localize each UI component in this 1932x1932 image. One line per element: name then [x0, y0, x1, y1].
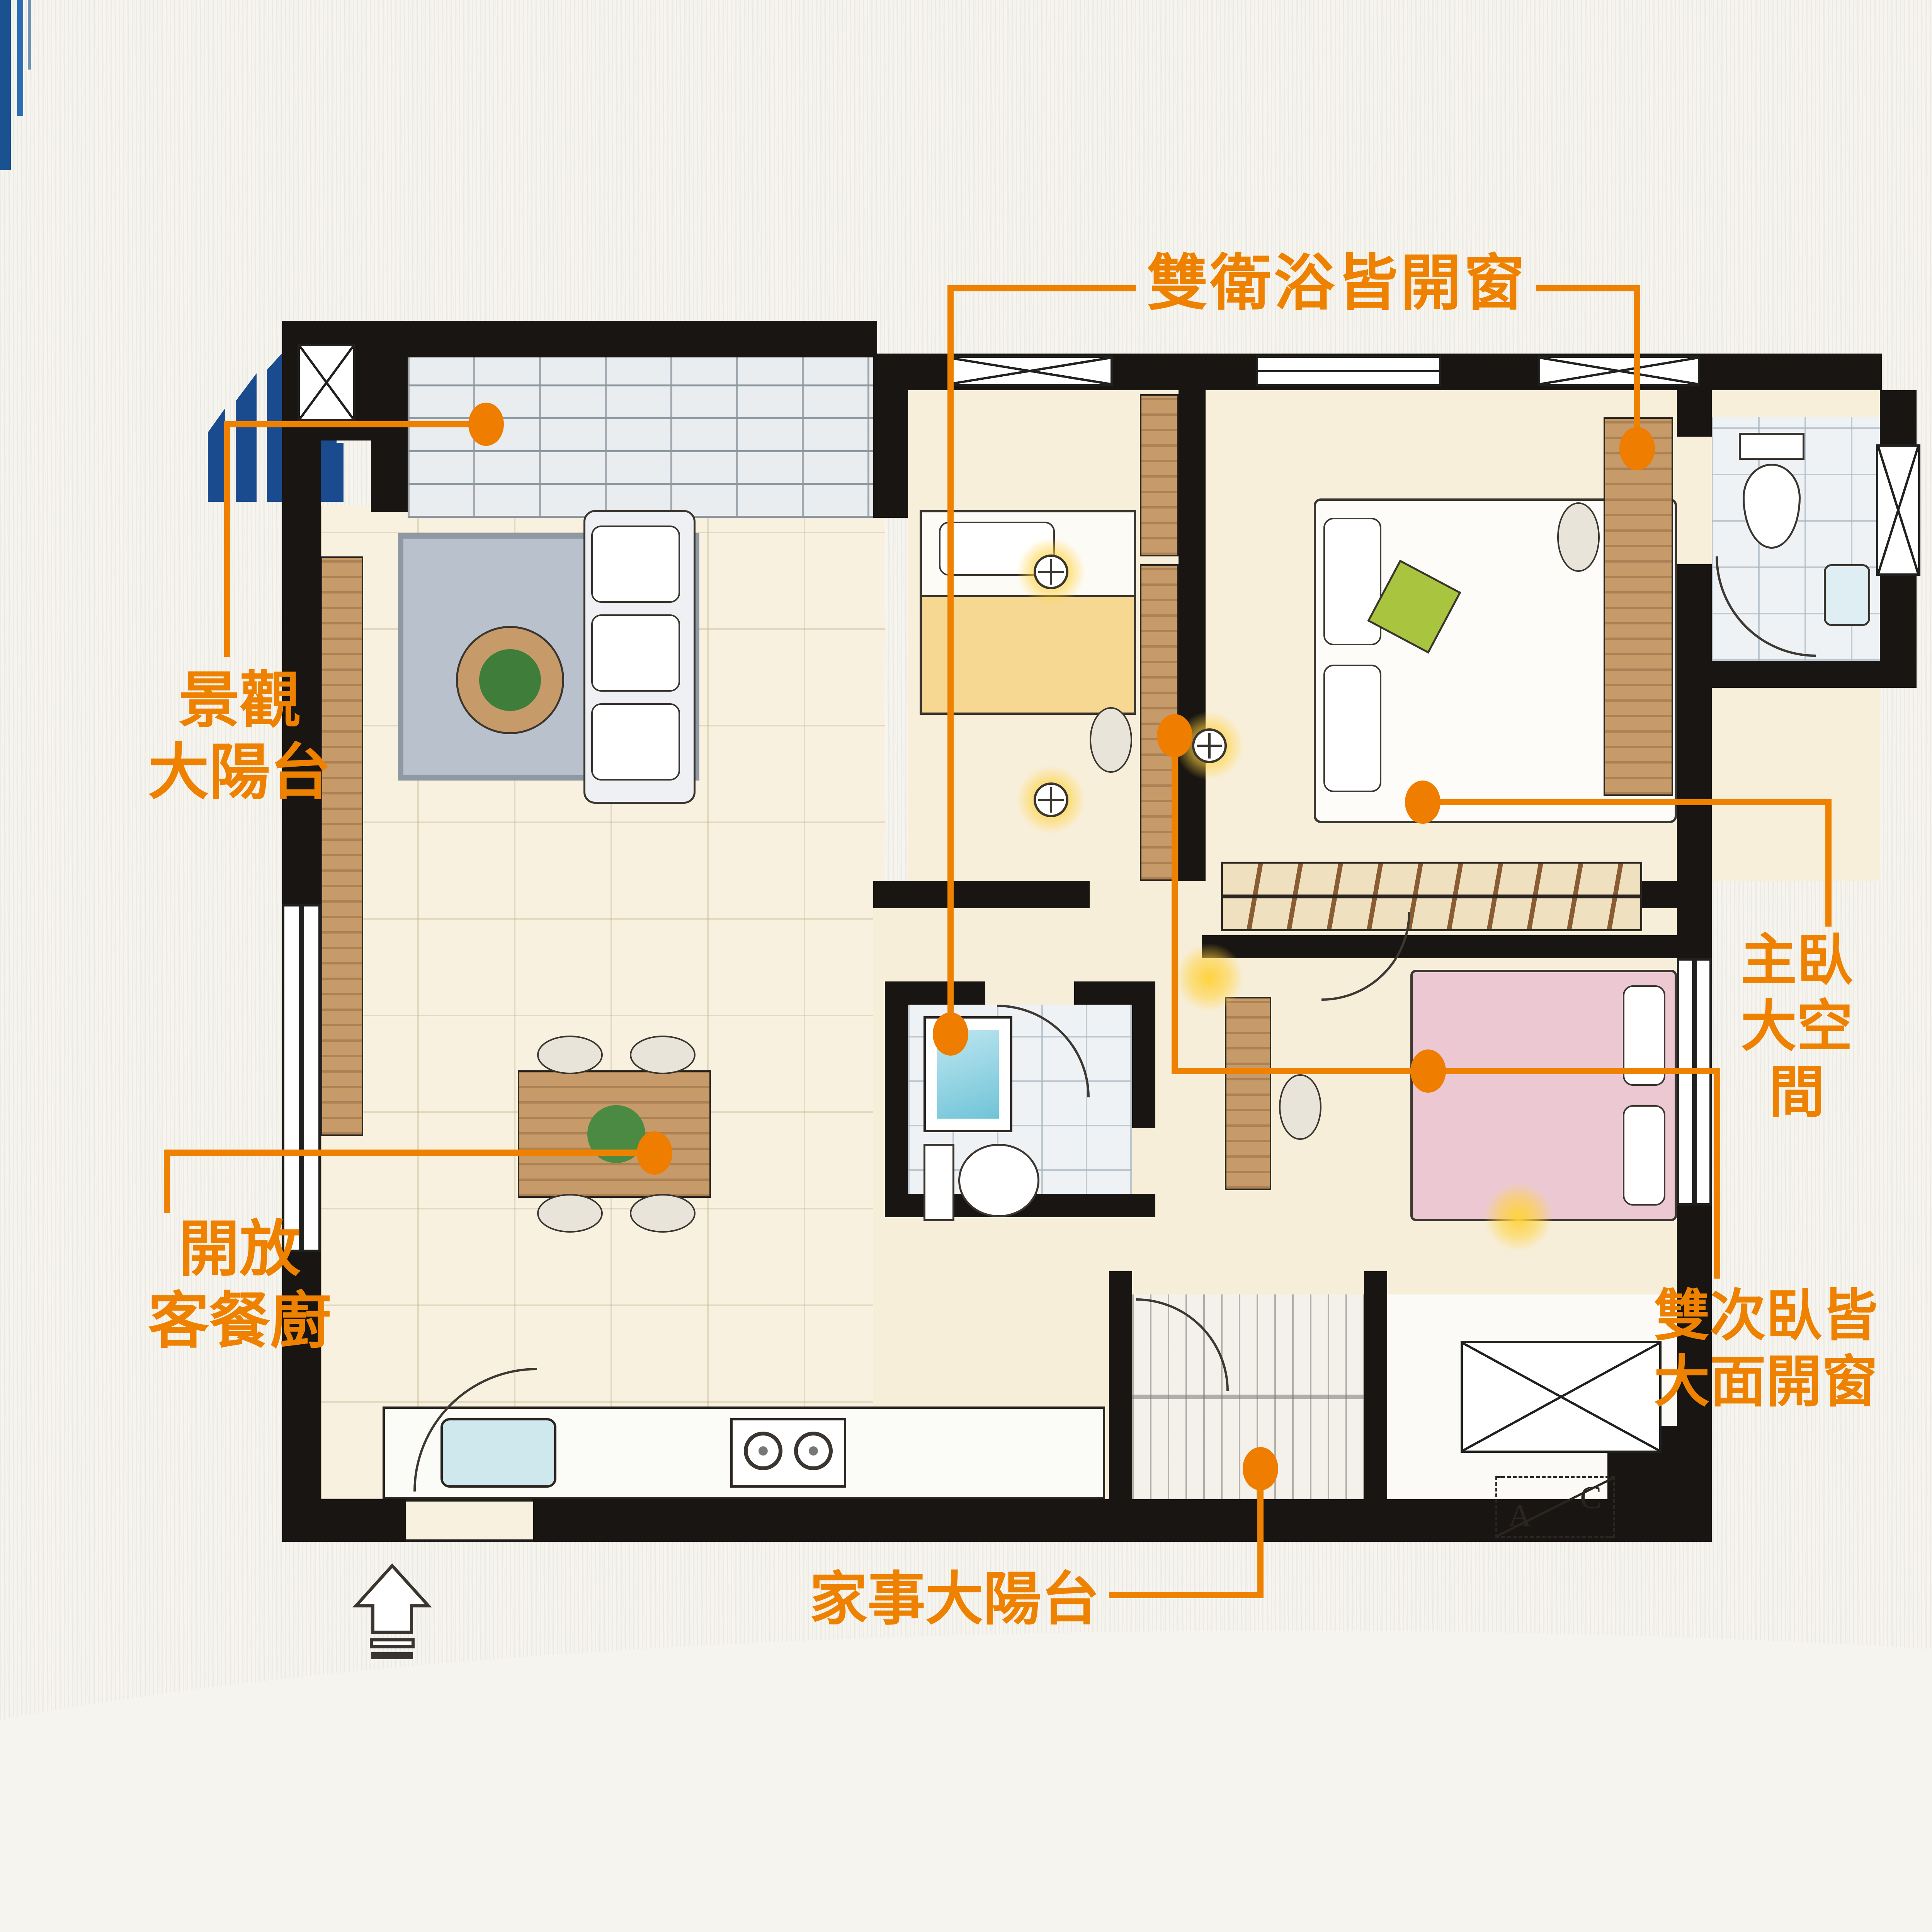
- leader-kitchen-dot: [637, 1131, 672, 1175]
- bed2-pillow-2: [1623, 1105, 1665, 1206]
- window-topleft-shaft: [298, 344, 355, 421]
- ceiling-light-symbol-2: [1034, 782, 1068, 817]
- entrance-arrow-icon: [350, 1561, 435, 1662]
- poster-page: 餘慶堂建設 YU CHING TANG 佳麗堡 A2 〈 輕奢 3 房 〉 方正…: [0, 0, 1932, 1932]
- wall-bath1-top-b: [1074, 981, 1132, 1005]
- window-top-3: [1538, 355, 1700, 386]
- master-chair: [1557, 502, 1600, 572]
- wall-service-left: [1109, 1271, 1132, 1499]
- wall-bath1-right: [1132, 981, 1155, 1128]
- window-bath2-right: [1876, 444, 1920, 576]
- annotation-master-line1: 主臥: [1716, 927, 1878, 993]
- dining-chair-4: [630, 1194, 696, 1233]
- leader-kitchen-vert: [164, 1150, 170, 1213]
- leader-baths-drop-center: [947, 285, 954, 1023]
- annotation-master-line2: 大空間: [1716, 993, 1878, 1126]
- leader-secondary-dot-bed1: [1157, 714, 1192, 757]
- wall-bed2-top: [1202, 935, 1677, 958]
- leader-baths-dot-center: [933, 1012, 968, 1056]
- leader-baths-dash-left: [951, 285, 1136, 291]
- leader-baths-dot-right: [1619, 427, 1655, 470]
- annotation-view-balcony-line2: 大陽台: [116, 736, 363, 808]
- leader-master-vert: [1825, 799, 1832, 927]
- annotation-open-kitchen: 開放 客餐廚: [116, 1213, 363, 1357]
- window-top-2: [1256, 355, 1441, 386]
- stove-burner-1: [744, 1432, 782, 1470]
- corner-stripes-left-2: [17, 0, 23, 116]
- leader-view-horiz: [224, 421, 479, 427]
- annotation-view-balcony: 景觀 大陽台: [116, 665, 363, 809]
- master-pillow-2: [1323, 665, 1381, 792]
- bed1-duvet: [922, 595, 1134, 713]
- coffee-table-plant: [479, 649, 541, 711]
- bath1-toilet-tank: [923, 1144, 954, 1221]
- storage-x-box: [1461, 1341, 1662, 1453]
- annotation-view-balcony-line1: 景觀: [116, 665, 363, 736]
- stove-burner-2: [794, 1432, 833, 1470]
- wall-balcony-left: [371, 357, 408, 512]
- wall-bath1-left: [885, 981, 908, 1217]
- dining-chair-2: [630, 1036, 696, 1074]
- wall-service-right: [1364, 1271, 1387, 1499]
- light-glow-5: [1484, 1182, 1553, 1252]
- window-bed2-right: [1677, 958, 1712, 1206]
- leader-secondary-vert-up: [1172, 734, 1178, 1074]
- leader-service-dot: [1243, 1447, 1278, 1490]
- sofa-cushion-1: [591, 526, 680, 603]
- leader-secondary-horiz: [1172, 1068, 1720, 1074]
- leader-master-horiz: [1422, 799, 1832, 805]
- bed2-chair: [1279, 1074, 1321, 1140]
- sofa-cushion-3: [591, 703, 680, 781]
- annotation-open-kitchen-line2: 客餐廚: [116, 1285, 363, 1357]
- window-living-left: [282, 904, 321, 1252]
- sofa-cushion-2: [591, 614, 680, 692]
- master-desk: [1604, 417, 1673, 796]
- leader-master-dot: [1405, 781, 1440, 824]
- ceiling-light-symbol-3: [1192, 728, 1227, 763]
- dining-chair-1: [537, 1036, 603, 1074]
- ac-letter-a: A: [1508, 1497, 1532, 1534]
- ac-letter-c: C: [1580, 1479, 1602, 1516]
- light-glow-4: [1175, 943, 1244, 1012]
- leader-secondary-vert-down: [1714, 1068, 1720, 1279]
- corner-stripes-left: [0, 0, 11, 170]
- annotation-secondary-line2: 大面開窗: [1642, 1349, 1889, 1415]
- leader-baths-dash-right: [1536, 285, 1640, 291]
- bath2-toilet-tank: [1739, 433, 1804, 460]
- dining-chair-3: [537, 1194, 603, 1233]
- bed1-bookshelf: [1140, 394, 1179, 556]
- wall-right-upper: [1677, 390, 1712, 437]
- master-pillow-1: [1323, 518, 1381, 645]
- bath1-toilet-bowl: [958, 1144, 1039, 1217]
- wall-balcony-right: [873, 390, 908, 518]
- bath2-sink: [1824, 564, 1870, 626]
- annotation-service-balcony: 家事大陽台: [804, 1565, 1105, 1633]
- wall-balcony-top: [371, 321, 877, 357]
- leader-service-horiz: [1109, 1592, 1264, 1598]
- annotation-open-kitchen-line1: 開放: [116, 1213, 363, 1285]
- band-curve-mask: [0, 1631, 1932, 1932]
- annotation-baths: 雙衛浴皆開窗: [1144, 247, 1530, 319]
- wall-bedroom-divider: [1179, 390, 1206, 881]
- leader-view-vert: [224, 421, 230, 657]
- master-wardrobe: [1221, 862, 1642, 931]
- entry-door-gap: [406, 1499, 533, 1542]
- tv-cabinet: [321, 556, 363, 1136]
- wall-bath2-bottom: [1677, 661, 1917, 688]
- wall-bedrooms-bottom-a: [873, 881, 1090, 908]
- leader-baths-drop-right: [1634, 285, 1640, 440]
- corner-stripes-left-3: [28, 0, 31, 70]
- ac-box: A C: [1495, 1476, 1615, 1538]
- annotation-secondary-line1: 雙次臥皆: [1642, 1283, 1889, 1349]
- annotation-secondary: 雙次臥皆 大面開窗: [1642, 1283, 1889, 1415]
- leader-kitchen-horiz: [164, 1150, 647, 1156]
- bed2-desk: [1225, 997, 1271, 1190]
- bed1-chair: [1090, 707, 1132, 773]
- window-top-1: [947, 355, 1113, 386]
- annotation-master: 主臥 大空間: [1716, 927, 1878, 1126]
- leader-secondary-dot-bed2: [1410, 1049, 1446, 1093]
- leader-view-dot: [468, 403, 504, 446]
- ceiling-light-symbol-1: [1034, 554, 1068, 589]
- wall-bath1-top-a: [908, 981, 985, 1005]
